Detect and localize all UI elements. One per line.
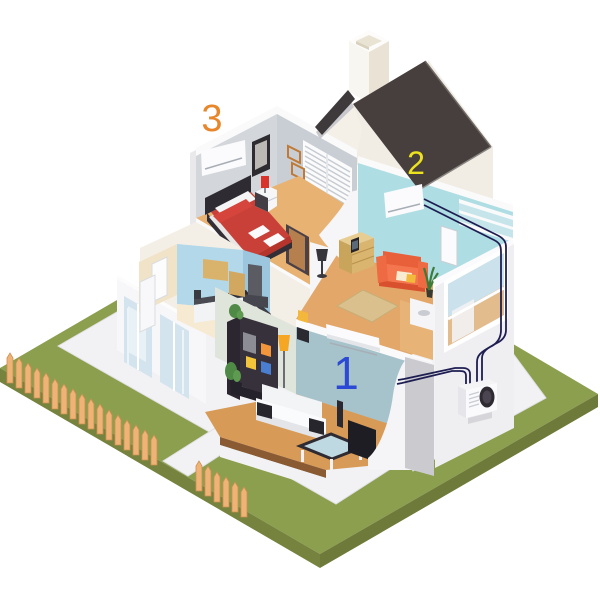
svg-text:3: 3 bbox=[201, 98, 222, 140]
svg-text:1: 1 bbox=[333, 347, 359, 399]
svg-text:2: 2 bbox=[407, 145, 425, 181]
